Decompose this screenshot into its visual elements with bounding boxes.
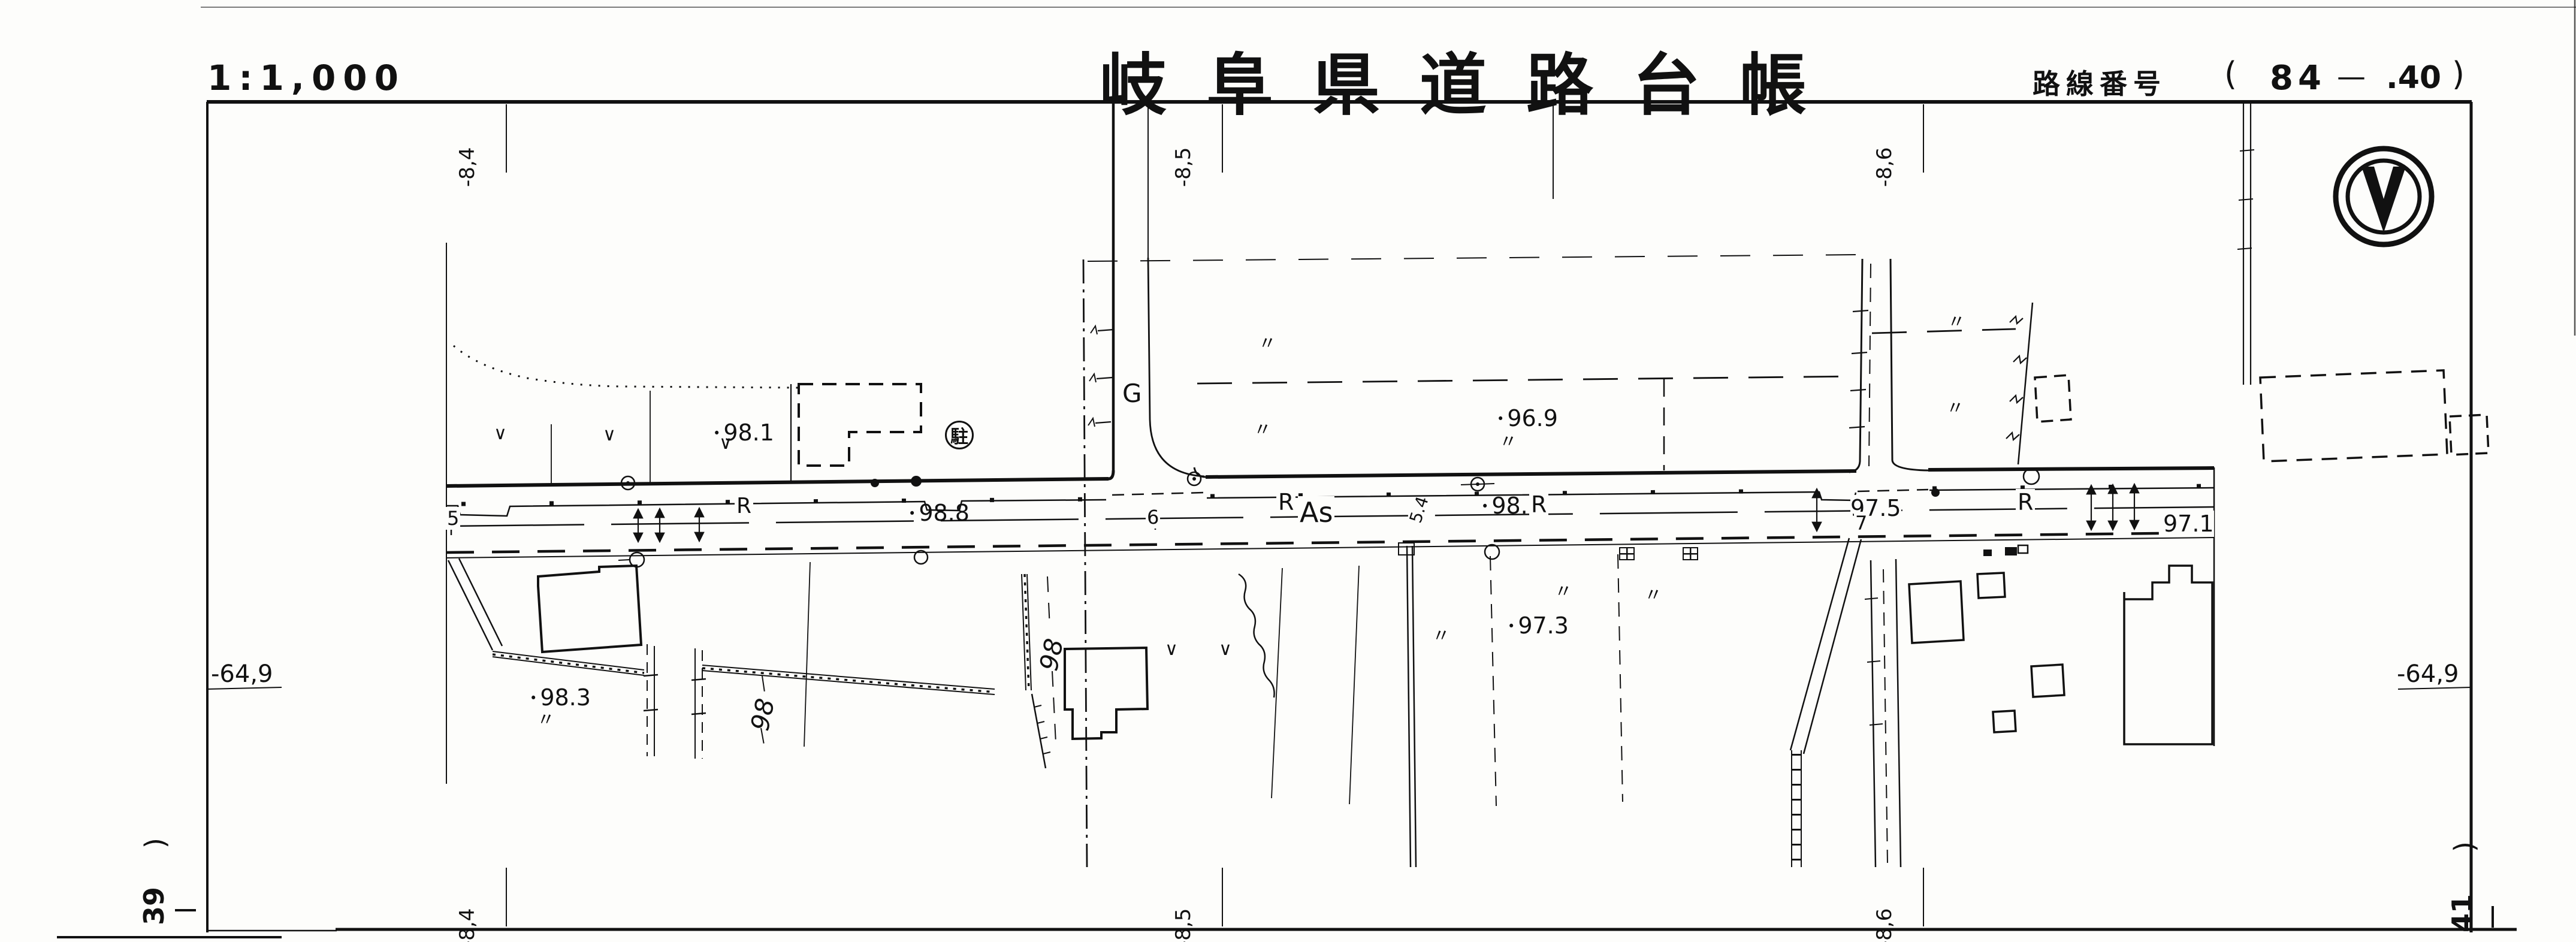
route-number-label: 路線番号 — [2033, 62, 2167, 102]
ditto-mark: 〃 — [1499, 427, 1517, 453]
grid-label-top-3: -8,6 — [1873, 147, 1896, 187]
corner-paren-right: ) — [2448, 841, 2481, 852]
width-arrows — [638, 484, 2134, 542]
route-number-value: 84 — [2270, 59, 2326, 98]
spot-elevation: 97.3 — [1508, 612, 1569, 639]
map-linework — [0, 0, 2576, 942]
grid-label-bottom-3: -8,6 — [1873, 908, 1896, 942]
boundary-dashdot-line — [1083, 259, 1087, 867]
surface-label: R — [1529, 491, 1548, 518]
route-paren-close: ) — [2452, 55, 2465, 93]
dashed-building-outline — [2035, 375, 2071, 422]
map-scale: 1:1,000 — [207, 58, 406, 98]
route-paren-open: ( — [2224, 55, 2237, 93]
buildings — [538, 545, 2212, 744]
vegetation-mark: ∨ — [1165, 639, 1177, 660]
dashed-building-outline — [799, 384, 921, 466]
surface-label: R — [1276, 489, 1295, 515]
right-upper-side-road — [1849, 259, 1928, 472]
station-number: 7 — [1854, 512, 1868, 535]
vegetation-mark: ∨ — [719, 433, 731, 454]
ditto-mark: 〃 — [1947, 307, 1965, 333]
grid-label-bottom-1: -8,4 — [455, 908, 479, 942]
ditto-mark: 〃 — [1946, 393, 1964, 419]
grid-label-top-1: -8,4 — [455, 147, 479, 187]
road-ledger-map-sheet: 1:1,000 岐阜県道路台帳 路線番号 ( 84 — .40 ) -8,4 -… — [0, 0, 2576, 942]
surface-label-asphalt: As — [1298, 496, 1334, 529]
route-number-suffix: .40 — [2386, 60, 2441, 96]
page-title: 岐阜県道路台帳 — [1100, 31, 1846, 128]
vegetation-mark: ∨ — [603, 424, 615, 445]
grid-label-top-2: -8,5 — [1171, 147, 1195, 187]
north-parcels — [446, 243, 2016, 784]
surface-label-gravel: G — [1121, 379, 1144, 408]
north-arrow-icon — [2330, 141, 2441, 255]
grid-label-bottom-2: -8,5 — [1171, 908, 1195, 942]
hedge-slant — [2006, 303, 2033, 464]
corner-paren-left: ) — [139, 838, 171, 849]
ditto-mark: 〃 — [537, 705, 555, 731]
vegetation-mark: ∨ — [494, 423, 506, 444]
ditto-mark: 〃 — [1644, 580, 1662, 606]
parking-symbol: 駐 — [945, 421, 974, 449]
parking-symbol-char: 駐 — [950, 422, 968, 448]
paddy-field-icon — [1619, 547, 1635, 560]
route-number-dash: — — [2337, 60, 2366, 93]
ditto-mark: 〃 — [1258, 328, 1276, 355]
ditto-mark: 〃 — [1554, 576, 1572, 603]
ditto-mark: 〃 — [1432, 621, 1450, 647]
station-number: 5 — [446, 507, 460, 530]
corner-number-right: 41 — [2446, 894, 2478, 932]
grid-ticks — [207, 103, 2471, 926]
spot-elevation: 98.8 — [908, 500, 970, 526]
grid-label-right: -64,9 — [2397, 660, 2459, 688]
surface-label: R — [2016, 489, 2035, 515]
vegetation-mark: ∨ — [1219, 639, 1231, 660]
surface-label: R — [735, 494, 753, 518]
corner-number-left: 39 — [138, 887, 170, 925]
grid-label-left: -64,9 — [211, 660, 273, 688]
paddy-field-icon — [1683, 547, 1698, 560]
ditto-mark: 〃 — [1254, 415, 1272, 441]
station-number: 6 — [1146, 506, 1160, 529]
spot-elevation: 97.1 — [2163, 511, 2214, 537]
